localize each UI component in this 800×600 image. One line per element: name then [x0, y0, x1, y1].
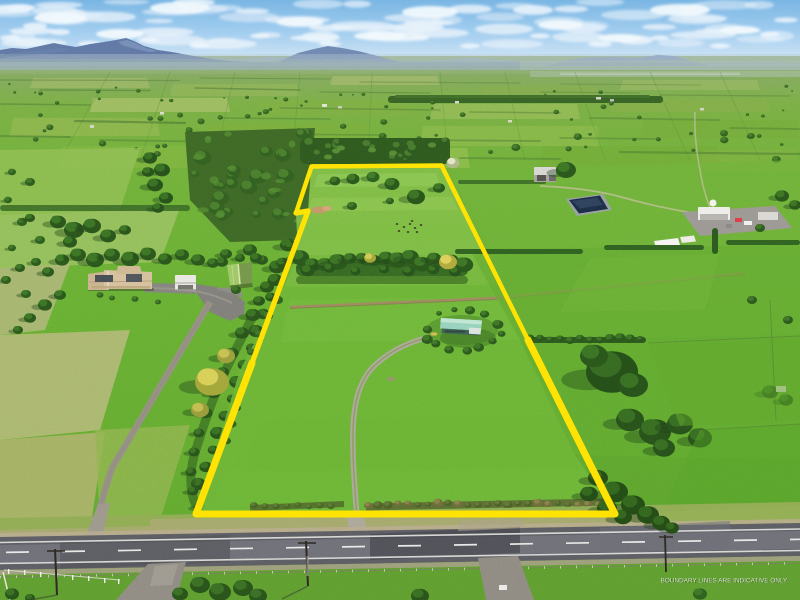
- svg-text:BOUNDARY LINES ARE INDICATIVE: BOUNDARY LINES ARE INDICATIVE ONLY: [661, 578, 788, 585]
